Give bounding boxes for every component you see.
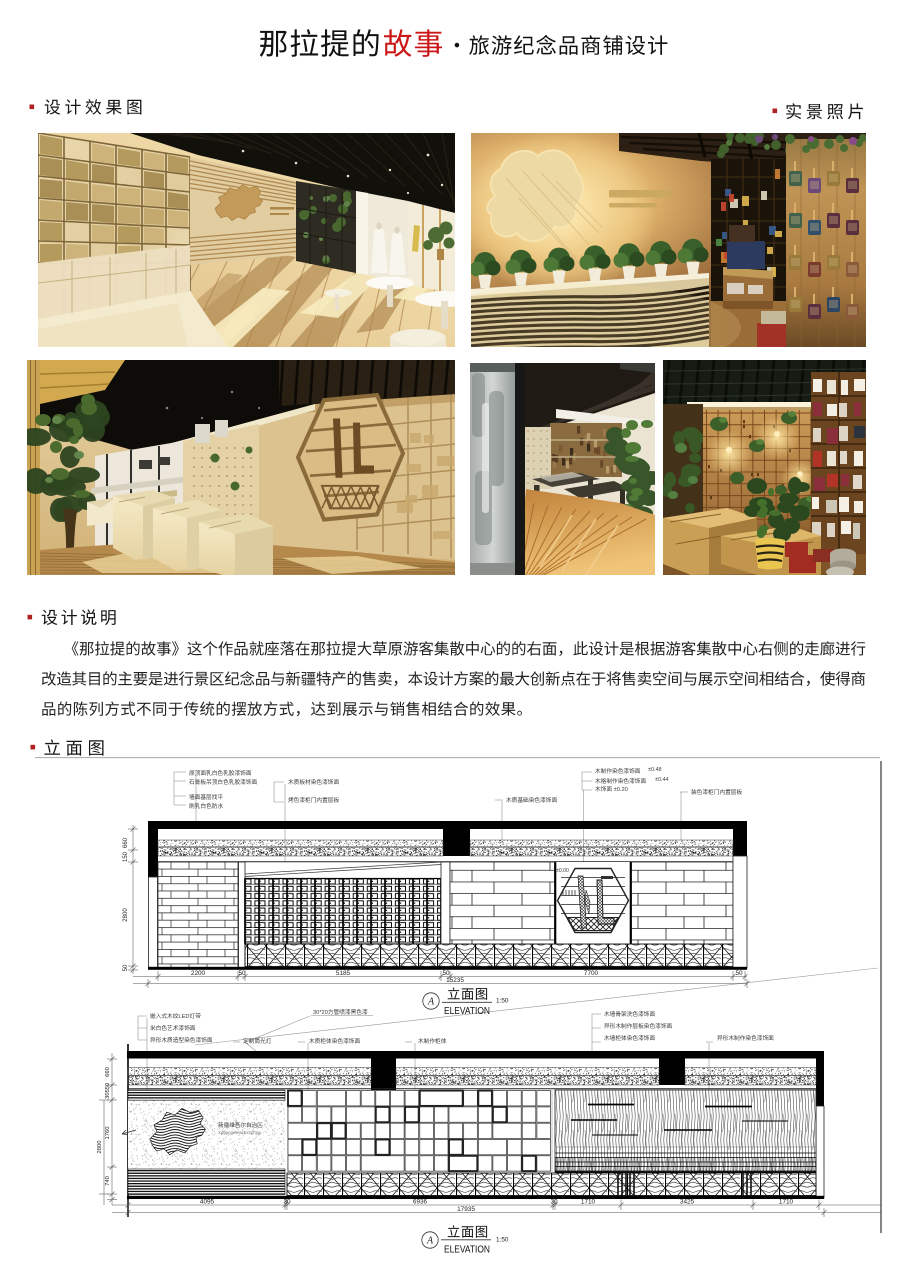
- svg-text:异形木质造型染色漆饰面: 异形木质造型染色漆饰面: [150, 1036, 213, 1044]
- svg-text:1760: 1760: [105, 1127, 111, 1140]
- svg-text:50: 50: [442, 970, 450, 977]
- svg-text:50: 50: [105, 1083, 111, 1089]
- svg-text:50: 50: [735, 970, 743, 977]
- svg-text:异形木制作染色漆饰面: 异形木制作染色漆饰面: [717, 1034, 774, 1042]
- svg-text:ELEVATION: ELEVATION: [444, 1245, 490, 1256]
- svg-text:异形木制作层板染色漆饰面: 异形木制作层板染色漆饰面: [604, 1022, 673, 1030]
- svg-text:2200: 2200: [191, 970, 206, 977]
- svg-text:740: 740: [105, 1176, 111, 1186]
- svg-text:烤色漆柜门内置层板: 烤色漆柜门内置层板: [288, 796, 339, 804]
- svg-text:50: 50: [238, 970, 246, 977]
- svg-text:Xinjiangweiwuerzizhiqu: Xinjiangweiwuerzizhiqu: [218, 1130, 262, 1135]
- svg-text:2800: 2800: [123, 908, 129, 922]
- svg-text:±0.48: ±0.48: [648, 767, 661, 773]
- svg-text:1710: 1710: [779, 1199, 794, 1206]
- svg-text:1:50: 1:50: [496, 1237, 509, 1244]
- svg-text:±0.44: ±0.44: [655, 777, 668, 783]
- svg-text:木墙骨架洗色漆饰面: 木墙骨架洗色漆饰面: [604, 1010, 655, 1018]
- svg-text:4095: 4095: [200, 1199, 215, 1206]
- svg-text:木制作染色漆饰面: 木制作染色漆饰面: [595, 767, 641, 775]
- svg-text:木质板材染色漆饰面: 木质板材染色漆饰面: [288, 778, 339, 786]
- svg-text:50: 50: [123, 964, 129, 971]
- svg-text:305: 305: [105, 1089, 111, 1099]
- svg-text:6936: 6936: [413, 1199, 428, 1206]
- svg-text:30: 30: [550, 1199, 558, 1206]
- svg-text:嵌入式木纹LED灯带: 嵌入式木纹LED灯带: [150, 1012, 201, 1020]
- svg-text:3425: 3425: [680, 1199, 695, 1206]
- svg-text:木质基础染色漆饰面: 木质基础染色漆饰面: [506, 796, 557, 804]
- svg-text:木墙柜体染色漆饰面: 木墙柜体染色漆饰面: [604, 1034, 655, 1042]
- svg-text:木制作柜体: 木制作柜体: [418, 1037, 447, 1045]
- svg-text:30*20方管喷漆黑色漆: 30*20方管喷漆黑色漆: [313, 1008, 368, 1016]
- svg-text:660: 660: [123, 837, 129, 848]
- svg-text:定制筒光灯: 定制筒光灯: [243, 1037, 272, 1045]
- svg-text:17935: 17935: [457, 1206, 475, 1213]
- svg-text:150: 150: [123, 851, 129, 862]
- svg-text:原顶面乳白色乳胶漆饰面: 原顶面乳白色乳胶漆饰面: [189, 769, 252, 777]
- svg-text:米白色艺术漆饰面: 米白色艺术漆饰面: [150, 1024, 196, 1032]
- svg-text:木质柜体染色漆饰面: 木质柜体染色漆饰面: [309, 1037, 360, 1045]
- svg-text:新疆维吾尔自治区: 新疆维吾尔自治区: [218, 1121, 263, 1129]
- svg-text:5185: 5185: [336, 970, 351, 977]
- svg-text:1:50: 1:50: [496, 998, 509, 1005]
- svg-text:A: A: [427, 997, 435, 1008]
- svg-text:660: 660: [105, 1067, 111, 1077]
- svg-text:A: A: [426, 1236, 434, 1247]
- svg-text:1710: 1710: [581, 1199, 596, 1206]
- svg-text:木饰面 ±0.20: 木饰面 ±0.20: [595, 785, 628, 793]
- svg-text:±0.00: ±0.00: [556, 868, 569, 874]
- svg-text:30: 30: [283, 1199, 291, 1206]
- svg-text:石膏板吊顶白色乳胶漆饰面: 石膏板吊顶白色乳胶漆饰面: [189, 778, 258, 786]
- svg-text:装色漆柜门内置层板: 装色漆柜门内置层板: [691, 788, 742, 796]
- svg-text:2800: 2800: [97, 1141, 103, 1154]
- svg-text:墙面基层找平: 墙面基层找平: [189, 793, 223, 801]
- svg-text:木格制作染色漆饰面: 木格制作染色漆饰面: [595, 777, 646, 785]
- svg-text:刷乳白色防水: 刷乳白色防水: [189, 802, 223, 810]
- svg-text:15235: 15235: [446, 977, 464, 984]
- svg-text:ELEVATION: ELEVATION: [444, 1006, 490, 1017]
- svg-text:7700: 7700: [584, 970, 599, 977]
